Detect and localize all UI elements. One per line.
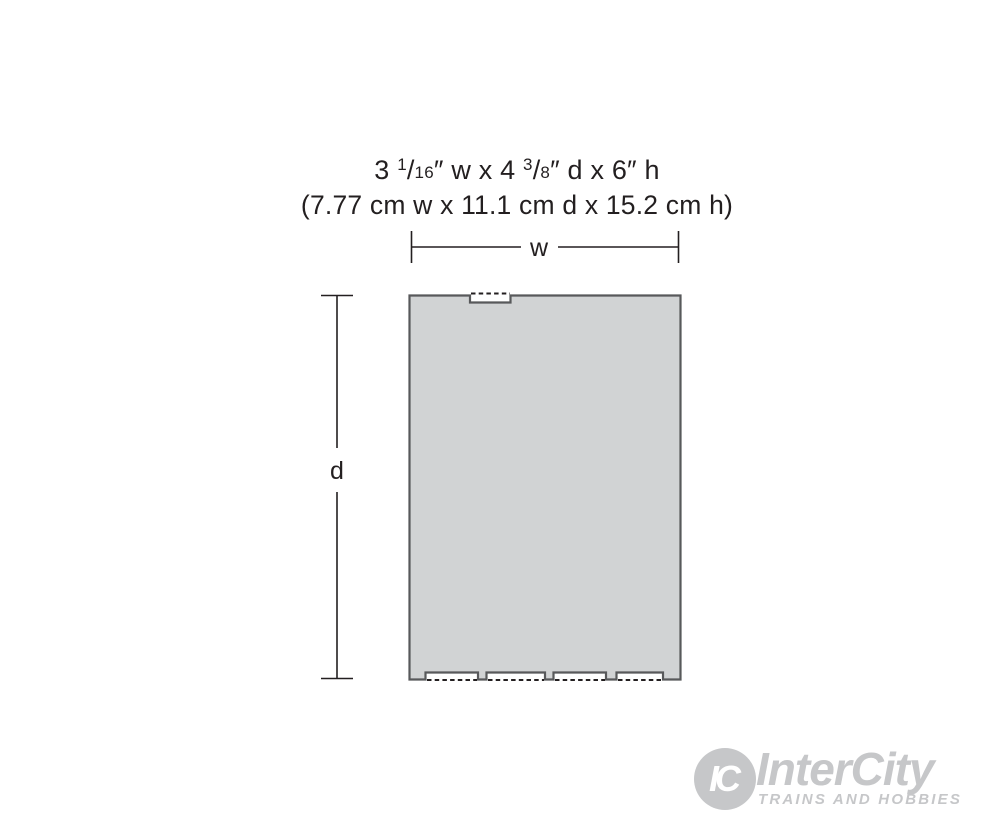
depth-dimension-line: d [321,296,353,679]
product-dimension-diagram: 3 1/16″ w x 4 3/8″ d x 6″ h (7.77 cm w x… [0,0,1000,833]
intercity-logo-name: InterCity [756,746,934,792]
intercity-logo-icon: IC [694,748,756,810]
intercity-logo: IC InterCity TRAINS AND HOBBIES [694,746,994,826]
footprint-outline [410,296,681,680]
intercity-monogram: IC [709,761,741,797]
depth-dimension-label: d [330,457,344,485]
intercity-logo-tagline: TRAINS AND HOBBIES [758,791,962,808]
footprint-diagram: w d [0,0,1000,833]
width-dimension-label: w [529,234,549,262]
width-dimension-line: w [412,231,679,263]
